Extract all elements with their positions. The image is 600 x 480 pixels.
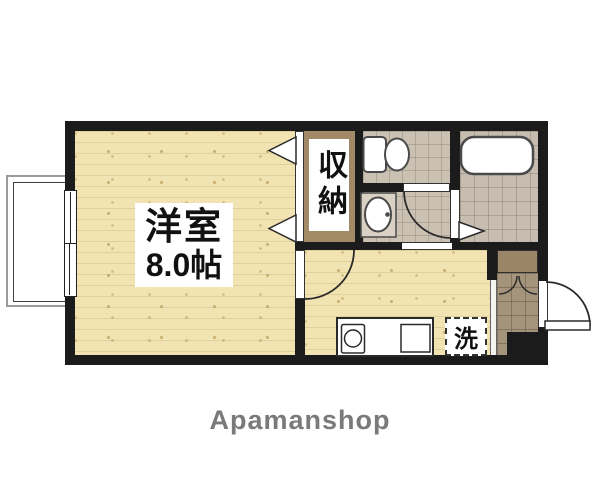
brand-logo: Apamanshop <box>0 405 600 436</box>
washer-pan: 洗 <box>445 317 487 356</box>
wall-corner-block <box>507 332 548 365</box>
wall-toilet-washroom <box>363 183 403 192</box>
entry-door-swing-arc <box>546 282 590 326</box>
wall-bottom <box>65 355 548 365</box>
entry-doorway-opening <box>538 281 548 327</box>
wall-right-upper <box>538 121 548 281</box>
wall-mid-horizontal-left <box>295 242 402 250</box>
bathroom-floor <box>460 131 538 242</box>
wall-left-upper <box>65 121 75 190</box>
washer-pan-label: 洗 <box>454 319 478 354</box>
main-room-label: 洋室 8.0帖 <box>135 203 233 287</box>
wall-left-lower <box>65 297 75 365</box>
main-room-size: 8.0帖 <box>146 248 223 284</box>
closet-label: 収納 <box>307 149 351 221</box>
closet-label-box: 収納 <box>309 139 349 231</box>
sliding-window <box>64 190 77 297</box>
toilet-door-panel <box>403 183 450 192</box>
shoe-cabinet <box>497 250 538 273</box>
kitchen-door-panel <box>295 250 305 299</box>
balcony <box>13 182 68 302</box>
closet-folding-door-panel <box>295 131 304 242</box>
wall-washroom-bath-upper <box>450 131 460 190</box>
entrance-step-edge <box>490 280 497 355</box>
wall-room-kitchen-lower <box>295 299 305 355</box>
bathroom-doorway-opening <box>450 190 460 238</box>
wall-closet-toilet <box>355 131 363 242</box>
main-room-name: 洋室 <box>145 206 223 247</box>
wall-mid-horizontal-right <box>452 242 548 250</box>
floorplan: 洋室 8.0帖 収納 洗 Apamanshop <box>0 0 600 480</box>
wall-entrance-post <box>487 242 497 280</box>
wall-top <box>65 121 548 131</box>
entry-door-leaf <box>545 321 590 330</box>
washroom-doorway-opening <box>402 242 452 250</box>
